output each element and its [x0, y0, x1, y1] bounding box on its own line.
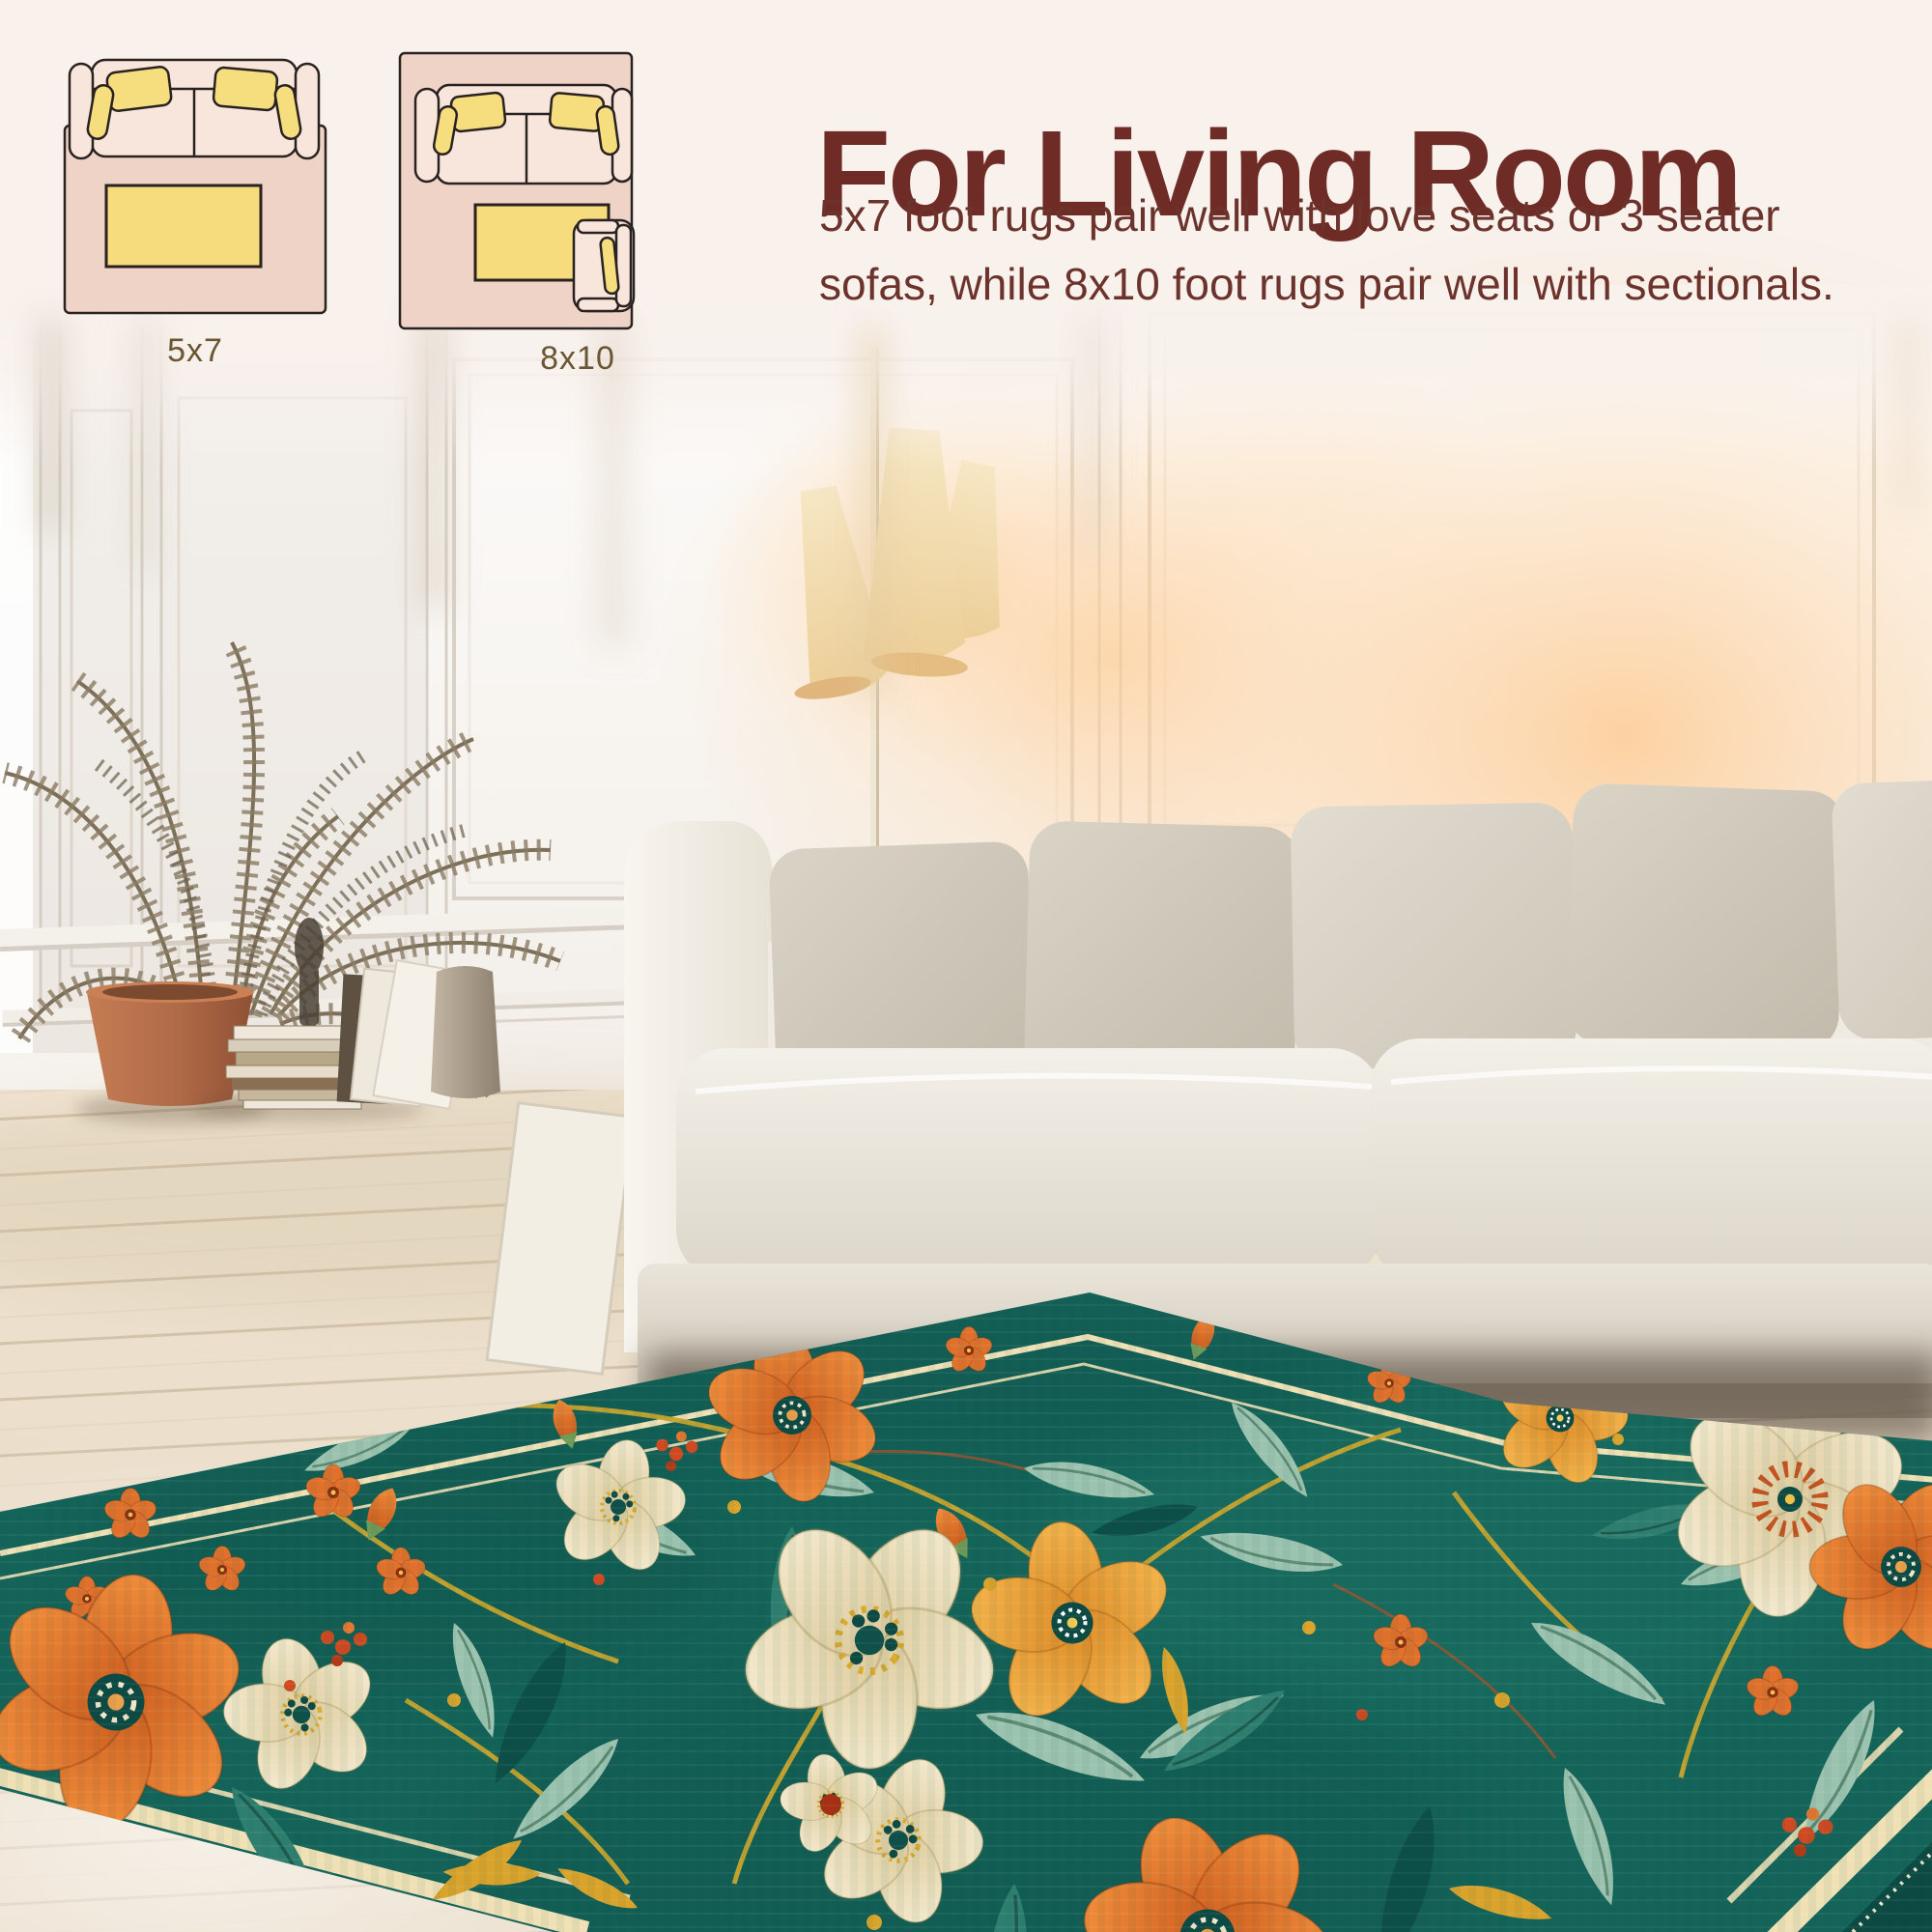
rug-5x7-diagram-icon	[65, 60, 326, 313]
rug-8x10-diagram-icon	[400, 53, 634, 328]
ceramic-vase	[431, 966, 500, 1098]
description-text: 5x7 foot rugs pair well with love seats …	[819, 182, 1932, 320]
armchair-icon	[574, 220, 634, 311]
rug-size-label-5x7: 5x7	[97, 332, 294, 370]
product-infographic: 5x7 8x10 For Living Room 5x7 foot rugs p…	[0, 0, 1932, 1932]
sofa-seat-cushions	[676, 1038, 1932, 1280]
rug-size-diagrams	[0, 0, 676, 386]
rug-size-label-8x10: 8x10	[479, 340, 676, 378]
coffee-table-icon	[106, 185, 261, 267]
description-line-1: 5x7 foot rugs pair well with love seats …	[819, 182, 1932, 250]
description-line-2: sofas, while 8x10 foot rugs pair well wi…	[819, 250, 1932, 319]
